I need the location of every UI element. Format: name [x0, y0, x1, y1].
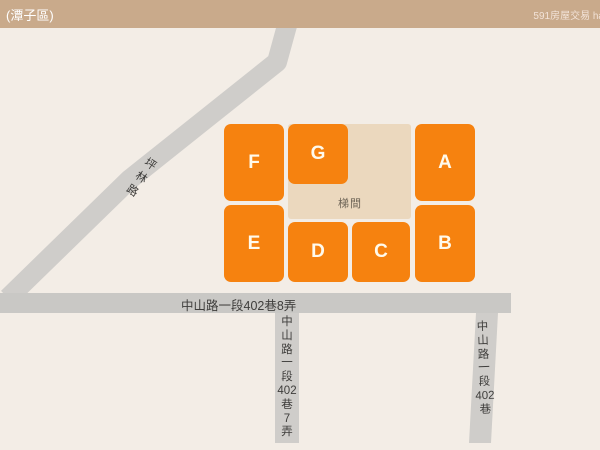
road-label-char: 山: [477, 335, 489, 349]
road-label-zhongshan-lane7: 中山路一段402巷7弄: [277, 316, 296, 440]
unit-label: G: [311, 143, 326, 165]
unit-label: D: [311, 241, 325, 263]
app-bar: (潭子區) 591房屋交易 ha: [0, 0, 600, 28]
unit-label: B: [438, 233, 452, 255]
road-label-char: 巷: [479, 404, 491, 418]
stairwell-label: 梯間: [338, 195, 362, 211]
unit-block-E[interactable]: E: [224, 205, 284, 282]
road-label-char: 弄: [281, 426, 293, 440]
district-title: (潭子區): [0, 5, 54, 24]
road-label-char: 中: [477, 321, 489, 335]
road-label-char: 7: [284, 413, 290, 427]
unit-block-G[interactable]: G: [288, 124, 348, 184]
unit-block-F[interactable]: F: [224, 124, 284, 201]
road-label-char: 路: [478, 348, 490, 362]
road-label-char: 中: [281, 316, 293, 330]
watermark-text: 591房屋交易 ha: [533, 7, 600, 22]
road-label-char: 一: [281, 357, 293, 371]
unit-block-C[interactable]: C: [352, 222, 410, 282]
map-canvas: 梯間 FGAEDCB 坪林路 中山路一段402巷8弄 中山路一段402巷7弄 中…: [0, 0, 600, 450]
road-label-zhongshan-lane8: 中山路一段402巷8弄: [181, 295, 296, 314]
unit-label: F: [248, 152, 260, 174]
unit-label: C: [374, 241, 388, 263]
road-label-char: 402: [277, 385, 296, 399]
unit-label: A: [438, 152, 452, 174]
unit-block-D[interactable]: D: [288, 222, 348, 282]
road-label-char: 路: [281, 344, 293, 358]
road-label-char: 段: [281, 371, 293, 385]
road-label-char: 山: [281, 330, 293, 344]
unit-label: E: [248, 233, 261, 255]
road-label-char: 402: [475, 390, 495, 404]
road-label-char: 段: [478, 376, 490, 390]
unit-block-B[interactable]: B: [415, 205, 475, 282]
unit-block-A[interactable]: A: [415, 124, 475, 201]
road-label-char: 巷: [281, 399, 293, 413]
road-label-zhongshan-alley402: 中山路一段402巷: [473, 321, 496, 418]
road-label-char: 一: [478, 362, 490, 376]
